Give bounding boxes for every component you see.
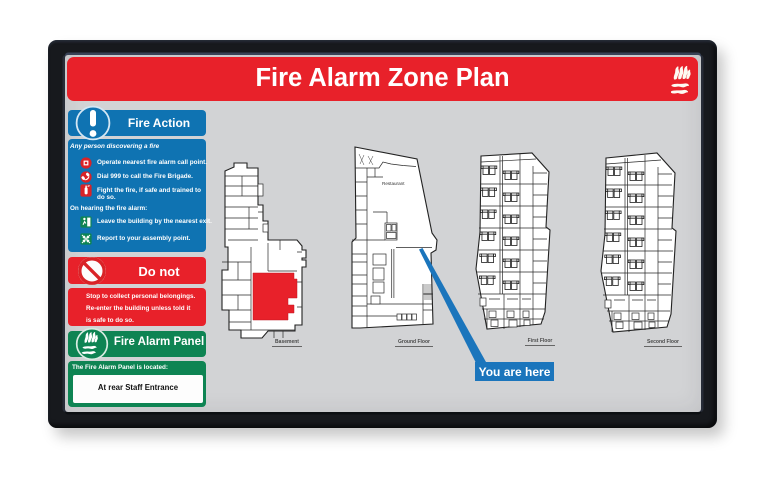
svg-text:Restaurant: Restaurant bbox=[382, 181, 405, 186]
